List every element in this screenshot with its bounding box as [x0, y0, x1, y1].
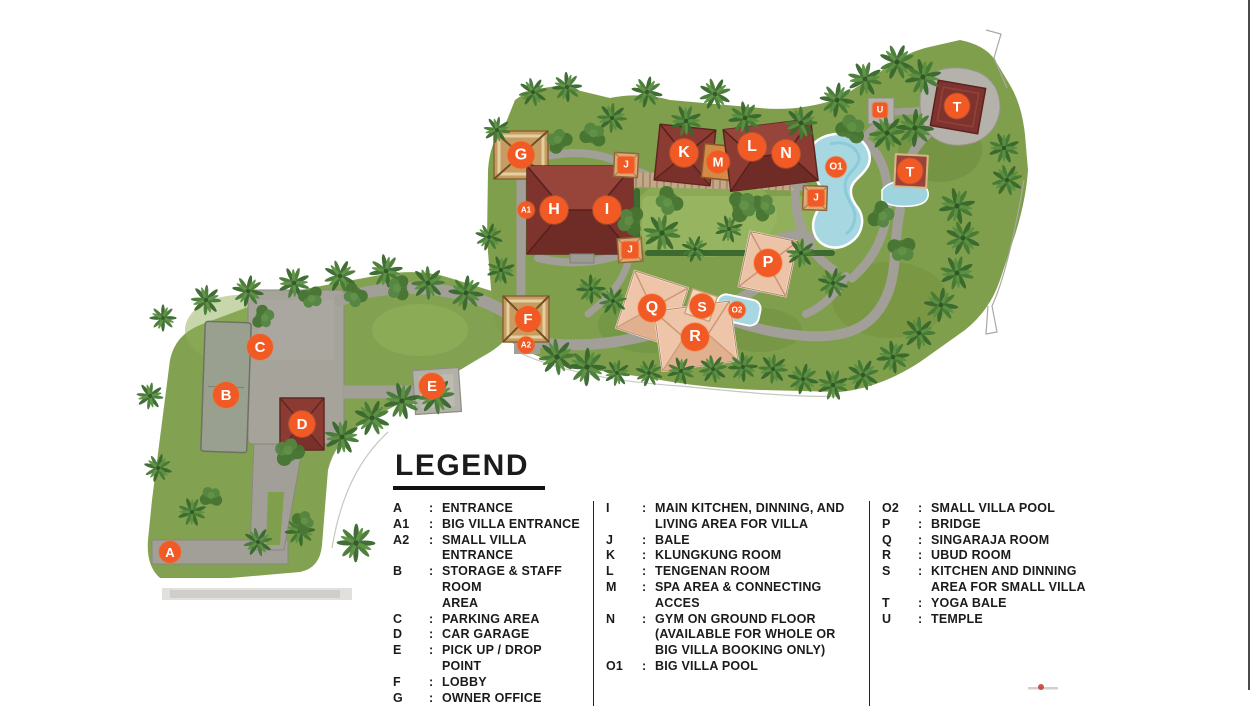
legend-separator: :: [429, 564, 442, 611]
legend-description: YOGA BALE: [931, 596, 1112, 612]
legend-separator: :: [642, 501, 655, 533]
map-marker-bale-3: J: [808, 190, 825, 207]
legend-item-R: R:UBUD ROOM: [882, 548, 1112, 564]
legend-separator: :: [918, 501, 931, 517]
legend-separator: :: [642, 548, 655, 564]
legend-separator: :: [642, 580, 655, 612]
map-marker-bridge: P: [754, 249, 782, 277]
legend-key: I: [606, 501, 642, 533]
legend-separator: :: [642, 564, 655, 580]
legend-description: GYM ON GROUND FLOOR (AVAILABLE FOR WHOLE…: [655, 612, 857, 659]
legend-description: KLUNGKUNG ROOM: [655, 548, 857, 564]
map-marker-singaraja-room: Q: [638, 294, 666, 322]
legend-item-B: B:STORAGE & STAFF ROOM AREA: [393, 564, 581, 611]
legend-description: BIG VILLA ENTRANCE: [442, 517, 581, 533]
map-marker-pickup-drop-point: E: [419, 373, 445, 399]
map-marker-entrance: A: [159, 541, 181, 563]
legend: LEGEND A:ENTRANCEA1:BIG VILLA ENTRANCEA2…: [393, 449, 1112, 706]
legend-key: M: [606, 580, 642, 612]
legend-key: A: [393, 501, 429, 517]
legend-item-O1: O1:BIG VILLA POOL: [606, 659, 857, 675]
legend-key: A1: [393, 517, 429, 533]
map-marker-gym: N: [772, 140, 800, 168]
legend-item-F: F:LOBBY: [393, 675, 581, 691]
legend-key: T: [882, 596, 918, 612]
legend-key: L: [606, 564, 642, 580]
legend-item-D: D:CAR GARAGE: [393, 627, 581, 643]
map-marker-yoga-bale-1: T: [945, 94, 970, 119]
legend-key: N: [606, 612, 642, 659]
legend-item-I: I:MAIN KITCHEN, DINNING, AND LIVING AREA…: [606, 501, 857, 533]
map-marker-car-garage: D: [289, 411, 315, 437]
resort-site-map-page: AA1A2BCDEFGHIJJJKLMNO1O2PQRSTTU LEGEND A…: [0, 0, 1250, 690]
legend-key: U: [882, 612, 918, 628]
legend-description: OWNER OFFICE: [442, 691, 581, 706]
legend-column: A:ENTRANCEA1:BIG VILLA ENTRANCEA2:SMALL …: [393, 501, 594, 706]
legend-description: TEMPLE: [931, 612, 1112, 628]
legend-key: D: [393, 627, 429, 643]
legend-key: K: [606, 548, 642, 564]
legend-separator: :: [642, 659, 655, 675]
legend-separator: :: [429, 501, 442, 517]
legend-separator: :: [642, 612, 655, 659]
legend-key: G: [393, 691, 429, 706]
legend-description: TENGENAN ROOM: [655, 564, 857, 580]
legend-separator: :: [429, 612, 442, 628]
legend-separator: :: [918, 612, 931, 628]
legend-description: UBUD ROOM: [931, 548, 1112, 564]
legend-separator: :: [918, 533, 931, 549]
map-marker-ubud-room: R: [681, 323, 709, 351]
legend-separator: :: [429, 627, 442, 643]
legend-item-N: N:GYM ON GROUND FLOOR (AVAILABLE FOR WHO…: [606, 612, 857, 659]
legend-separator: :: [429, 691, 442, 706]
legend-description: BIG VILLA POOL: [655, 659, 857, 675]
map-marker-storage-staff-room: B: [213, 382, 239, 408]
legend-key: O2: [882, 501, 918, 517]
legend-key: B: [393, 564, 429, 611]
legend-separator: :: [429, 517, 442, 533]
legend-description: SINGARAJA ROOM: [931, 533, 1112, 549]
legend-item-J: J:BALE: [606, 533, 857, 549]
legend-description: CAR GARAGE: [442, 627, 581, 643]
legend-key: A2: [393, 533, 429, 565]
legend-description: PARKING AREA: [442, 612, 581, 628]
legend-column: O2:SMALL VILLA POOLP:BRIDGEQ:SINGARAJA R…: [870, 501, 1112, 706]
map-marker-bale-1: J: [618, 157, 635, 174]
map-marker-klungkung-room: K: [670, 139, 698, 167]
legend-item-K: K:KLUNGKUNG ROOM: [606, 548, 857, 564]
legend-description: KITCHEN AND DINNING AREA FOR SMALL VILLA: [931, 564, 1112, 596]
legend-description: MAIN KITCHEN, DINNING, AND LIVING AREA F…: [655, 501, 857, 533]
legend-description: BALE: [655, 533, 857, 549]
map-marker-small-villa-entrance: A2: [518, 337, 535, 354]
map-marker-parking-area: C: [247, 334, 273, 360]
legend-separator: :: [429, 675, 442, 691]
legend-separator: :: [429, 533, 442, 565]
legend-item-L: L:TENGENAN ROOM: [606, 564, 857, 580]
legend-key: C: [393, 612, 429, 628]
map-marker-tengenan-room: L: [738, 133, 766, 161]
legend-item-G: G:OWNER OFFICE: [393, 691, 581, 706]
legend-key: J: [606, 533, 642, 549]
legend-item-E: E:PICK UP / DROP POINT: [393, 643, 581, 675]
map-marker-small-villa-pool: O2: [729, 302, 746, 319]
map-marker-yoga-bale-2: T: [898, 159, 923, 184]
legend-description: LOBBY: [442, 675, 581, 691]
legend-separator: :: [918, 548, 931, 564]
legend-key: S: [882, 564, 918, 596]
map-marker-big-villa-entrance: A1: [518, 202, 535, 219]
map-marker-small-villa-kitchen: S: [690, 294, 715, 319]
legend-item-M: M:SPA AREA & CONNECTING ACCES: [606, 580, 857, 612]
legend-item-S: S:KITCHEN AND DINNING AREA FOR SMALL VIL…: [882, 564, 1112, 596]
legend-separator: :: [918, 517, 931, 533]
legend-separator: :: [642, 533, 655, 549]
legend-key: E: [393, 643, 429, 675]
map-marker-owner-office: G: [508, 142, 535, 169]
legend-separator: :: [918, 596, 931, 612]
map-marker-temple: U: [873, 103, 888, 118]
legend-key: O1: [606, 659, 642, 675]
legend-item-Q: Q:SINGARAJA ROOM: [882, 533, 1112, 549]
legend-key: Q: [882, 533, 918, 549]
map-marker-main-kitchen-dining: I: [593, 196, 621, 224]
legend-item-C: C:PARKING AREA: [393, 612, 581, 628]
legend-item-U: U:TEMPLE: [882, 612, 1112, 628]
legend-description: SPA AREA & CONNECTING ACCES: [655, 580, 857, 612]
legend-column: I:MAIN KITCHEN, DINNING, AND LIVING AREA…: [594, 501, 870, 706]
map-marker-spa-area: M: [707, 151, 730, 174]
legend-columns: A:ENTRANCEA1:BIG VILLA ENTRANCEA2:SMALL …: [393, 501, 1112, 706]
map-marker-big-villa-pool: O1: [826, 157, 847, 178]
legend-item-P: P:BRIDGE: [882, 517, 1112, 533]
legend-key: R: [882, 548, 918, 564]
legend-separator: :: [429, 643, 442, 675]
map-marker-main-villa-h: H: [540, 196, 568, 224]
legend-key: P: [882, 517, 918, 533]
legend-item-O2: O2:SMALL VILLA POOL: [882, 501, 1112, 517]
legend-item-T: T:YOGA BALE: [882, 596, 1112, 612]
legend-item-A: A:ENTRANCE: [393, 501, 581, 517]
legend-separator: :: [918, 564, 931, 596]
legend-description: STORAGE & STAFF ROOM AREA: [442, 564, 581, 611]
legend-title: LEGEND: [393, 449, 545, 490]
legend-description: SMALL VILLA POOL: [931, 501, 1112, 517]
legend-description: PICK UP / DROP POINT: [442, 643, 581, 675]
map-marker-lobby: F: [515, 306, 541, 332]
legend-description: BRIDGE: [931, 517, 1112, 533]
legend-description: SMALL VILLA ENTRANCE: [442, 533, 581, 565]
legend-key: F: [393, 675, 429, 691]
map-marker-bale-2: J: [622, 242, 639, 259]
legend-item-A1: A1:BIG VILLA ENTRANCE: [393, 517, 581, 533]
legend-item-A2: A2:SMALL VILLA ENTRANCE: [393, 533, 581, 565]
legend-description: ENTRANCE: [442, 501, 581, 517]
